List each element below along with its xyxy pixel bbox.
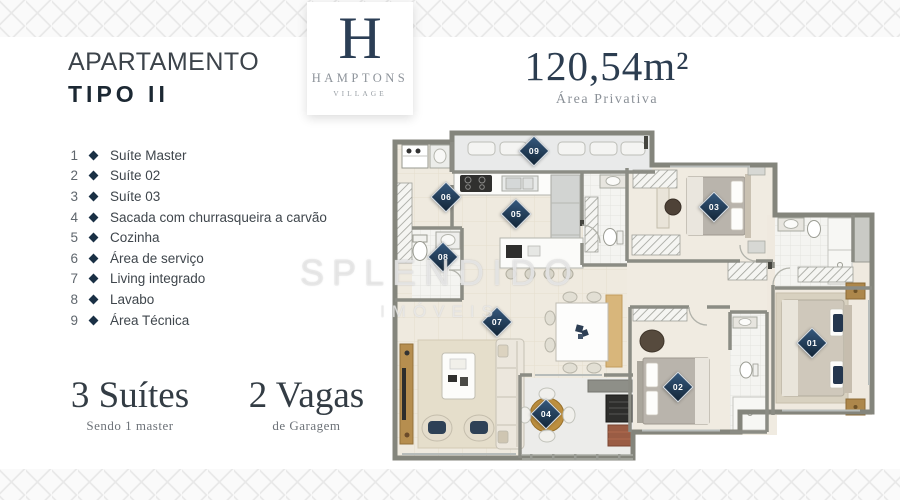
floor-plan: 01 02 03 04 05 06 07 08 09 xyxy=(390,125,880,465)
plan-marker-label: 02 xyxy=(673,382,683,392)
legend-item: 5Cozinha xyxy=(62,227,392,248)
legend-label: Lavabo xyxy=(110,292,154,307)
plan-marker-label: 06 xyxy=(441,192,451,202)
private-area-block: 120,54m² Área Privativa xyxy=(495,42,719,108)
plan-marker-label: 04 xyxy=(541,409,551,419)
legend-item: 8Lavabo xyxy=(62,289,392,310)
title-block: APARTAMENTO TIPO II xyxy=(68,48,259,108)
legend-item: 9Área Técnica xyxy=(62,310,392,331)
logo-name: HAMPTONS xyxy=(307,71,413,86)
plan-marker-label: 05 xyxy=(511,209,521,219)
stat-vagas: 2 Vagas de Garagem xyxy=(226,374,386,434)
stat-suites-value: 3 Suítes xyxy=(40,374,220,417)
stat-vagas-caption: de Garagem xyxy=(226,418,386,434)
diamond-bullet-icon xyxy=(89,192,99,202)
legend-label: Suíte 02 xyxy=(110,168,160,183)
legend-item: 3Suíte 03 xyxy=(62,186,392,207)
legend-number: 9 xyxy=(62,313,78,328)
legend-number: 1 xyxy=(62,148,78,163)
apartment-floorplan-page: APARTAMENTO TIPO II H HAMPTONS VILLAGE 1… xyxy=(0,0,900,500)
legend-label: Área de serviço xyxy=(110,251,204,266)
area-value: 120,54m² xyxy=(495,42,719,90)
area-label: Área Privativa xyxy=(495,92,719,108)
legend-item: 1Suíte Master xyxy=(62,145,392,166)
legend-item: 2Suíte 02 xyxy=(62,166,392,187)
stat-suites-caption: Sendo 1 master xyxy=(40,418,220,434)
plan-marker-label: 07 xyxy=(492,317,502,327)
plan-marker-label: 08 xyxy=(438,252,448,262)
stat-suites: 3 Suítes Sendo 1 master xyxy=(40,374,220,434)
legend-label: Suíte 03 xyxy=(110,189,160,204)
diamond-bullet-icon xyxy=(89,171,99,181)
plan-marker-label: 03 xyxy=(709,202,719,212)
legend-item: 4Sacada com churrasqueira a carvão xyxy=(62,207,392,228)
diamond-bullet-icon xyxy=(89,253,99,263)
page-title: APARTAMENTO xyxy=(68,48,259,77)
diamond-bullet-icon xyxy=(89,315,99,325)
legend-label: Living integrado xyxy=(110,271,205,286)
logo-subname: VILLAGE xyxy=(307,89,413,98)
logo-monogram-icon: H xyxy=(307,8,413,68)
decor-pattern-bottom xyxy=(0,469,900,500)
legend-label: Cozinha xyxy=(110,230,160,245)
decor-pattern-top xyxy=(0,0,900,37)
legend: 1Suíte Master 2Suíte 02 3Suíte 03 4Sacad… xyxy=(62,145,392,330)
legend-label: Sacada com churrasqueira a carvão xyxy=(110,210,327,225)
legend-number: 4 xyxy=(62,210,78,225)
diamond-bullet-icon xyxy=(89,150,99,160)
legend-number: 8 xyxy=(62,292,78,307)
legend-label: Área Técnica xyxy=(110,313,189,328)
stats-block: 3 Suítes Sendo 1 master 2 Vagas de Garag… xyxy=(40,374,386,434)
plan-marker-label: 01 xyxy=(807,338,817,348)
legend-label: Suíte Master xyxy=(110,148,187,163)
stat-vagas-value: 2 Vagas xyxy=(226,374,386,417)
legend-number: 7 xyxy=(62,271,78,286)
plan-marker-label: 09 xyxy=(529,146,539,156)
legend-number: 2 xyxy=(62,168,78,183)
legend-number: 5 xyxy=(62,230,78,245)
page-subtitle: TIPO II xyxy=(68,81,259,108)
diamond-bullet-icon xyxy=(89,274,99,284)
diamond-bullet-icon xyxy=(89,295,99,305)
legend-item: 7Living integrado xyxy=(62,269,392,290)
floor-plan-drawing xyxy=(390,125,880,465)
logo-card: H HAMPTONS VILLAGE xyxy=(307,2,413,115)
diamond-bullet-icon xyxy=(89,233,99,243)
legend-item: 6Área de serviço xyxy=(62,248,392,269)
legend-number: 6 xyxy=(62,251,78,266)
legend-number: 3 xyxy=(62,189,78,204)
diamond-bullet-icon xyxy=(89,212,99,222)
